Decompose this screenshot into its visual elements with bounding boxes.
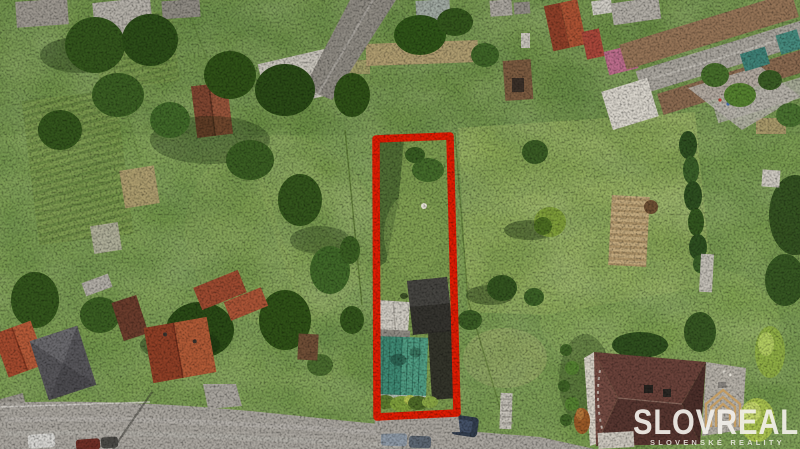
aerial-photo-canvas: SLOVREAL SLOVENSKÉ REALITY xyxy=(0,0,800,449)
aerial-photo: SLOVREAL SLOVENSKÉ REALITY xyxy=(0,0,800,449)
watermark-tagline-text: SLOVENSKÉ REALITY xyxy=(650,438,785,447)
watermark-brand-text: SLOVREAL xyxy=(633,403,799,442)
photo-grain xyxy=(0,0,800,449)
